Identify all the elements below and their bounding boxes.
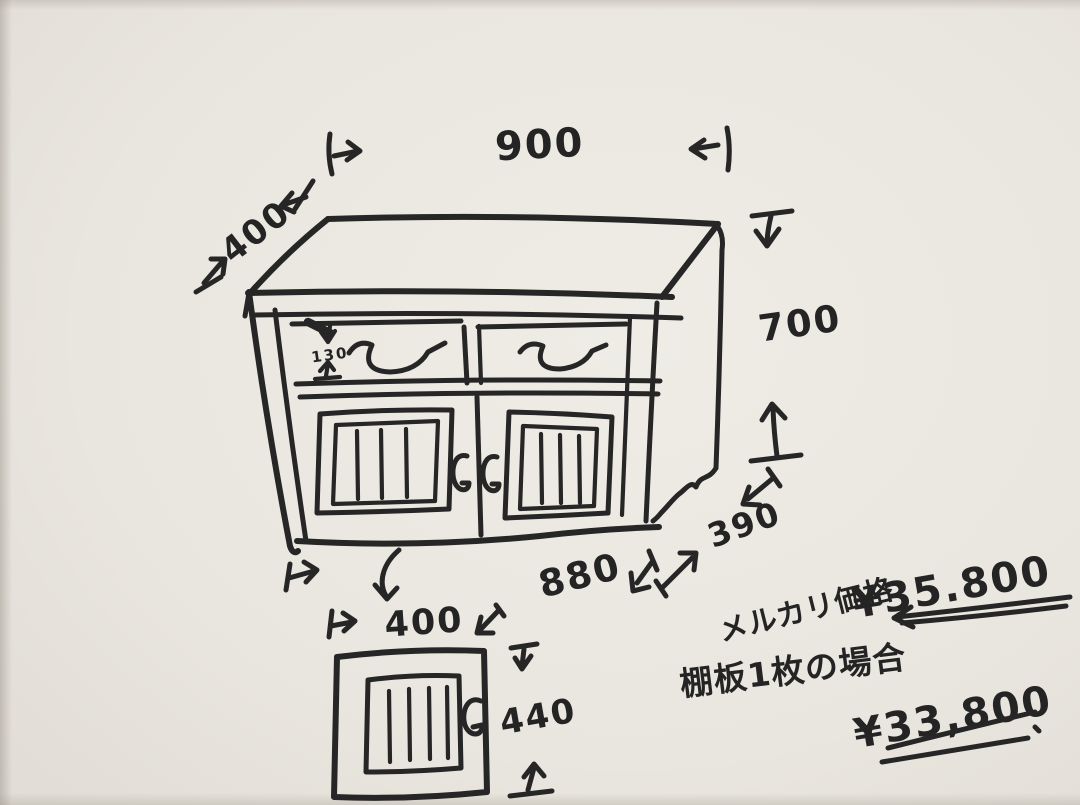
door-center-divider [477, 397, 481, 535]
cabinet-top-back-edge [328, 217, 718, 224]
left-arrow-icon [477, 610, 499, 633]
base-bar [315, 377, 340, 379]
drawer-divider-left [464, 327, 467, 383]
shelf-option-price: ¥33,800 [850, 676, 1056, 758]
left-door-inner [333, 421, 438, 504]
cabinet-bottom-rail [297, 527, 659, 544]
dimension-top-width: 900 [329, 120, 729, 174]
right-arrow-icon [331, 613, 355, 631]
left-door-slat-2 [381, 430, 382, 498]
right-arrow-icon [334, 142, 360, 160]
left-drawer-handle [349, 343, 445, 372]
cabinet-right-panel-edge [716, 227, 723, 468]
right-drawer-handle [520, 344, 606, 369]
left-arrow-icon [691, 140, 718, 158]
dimension-door-height: 440 [497, 644, 580, 796]
up-arrow-icon [762, 404, 785, 456]
dimension-door-width: 400 [329, 600, 504, 645]
shelf-line-upper [296, 380, 660, 384]
cabinet-top-front-edge [248, 291, 672, 297]
dimension-depth: 400 [196, 181, 313, 292]
dimension-height: 700 [751, 211, 844, 461]
left-diagonal-arrow-icon [631, 562, 652, 591]
dim-door-height-label: 440 [497, 691, 580, 744]
mercari-price-value: ¥35.800 [849, 546, 1055, 628]
left-door-slat-3 [406, 429, 407, 497]
dimension-drawer-front: 130 [308, 322, 350, 379]
door-detail-sketch [334, 650, 487, 798]
upper-bound-bar [295, 181, 313, 209]
left-door-slat-1 [357, 431, 358, 499]
right-door-slat-2 [560, 435, 561, 503]
door-slat-1 [389, 691, 390, 762]
left-bound-bar [329, 134, 332, 174]
down-arrow-icon [515, 649, 531, 669]
bottom-base-bar [510, 791, 552, 796]
up-arrow-icon [524, 764, 544, 790]
cabinet-sketch [245, 217, 723, 552]
door-slat-3 [429, 688, 430, 759]
door-slat-4 [447, 687, 448, 758]
right-door-slat-1 [541, 434, 542, 503]
right-door-slat-3 [579, 436, 580, 503]
cabinet-front-right-edge [646, 303, 657, 521]
down-arrow-icon [756, 216, 779, 246]
sketch-paper: 900 400 700 130 390 880 [0, 0, 1080, 805]
drawer-divider-right [479, 326, 481, 383]
cabinet-right-bottom-squiggle [653, 468, 716, 521]
right-diagonal-arrow-icon [662, 553, 696, 588]
furniture-sketch-svg: 900 400 700 130 390 880 [0, 0, 1080, 805]
drawer-rail-top-line-2 [478, 324, 626, 327]
left-door-handle [453, 455, 469, 489]
shelf-option-label: 棚板1枚の場合 [678, 637, 909, 703]
bottom-base-bar [751, 455, 801, 461]
dimension-base-depth: 390 [702, 469, 786, 556]
pricing-notes: メルカリ価格 ¥35.800 棚板1枚の場合 ¥33,800 [678, 546, 1070, 762]
cabinet-right-stile [622, 317, 630, 515]
curved-down-arrow-icon [375, 550, 399, 599]
right-door-handle [483, 456, 499, 490]
door-handle [464, 700, 482, 734]
cabinet-top-fascia-bottom [253, 314, 681, 318]
dim-base-width-label: 880 [534, 545, 625, 607]
leftmost-bound-arrow-icon [286, 562, 317, 590]
dim-height-label: 700 [756, 296, 844, 350]
cabinet-top-right-edge [662, 224, 718, 297]
dim-base-depth-label: 390 [702, 493, 786, 555]
dim-door-width-label: 400 [383, 600, 465, 645]
dim-top-width-label: 900 [494, 120, 586, 171]
dimension-base-width: 880 [286, 545, 696, 607]
door-slat-2 [409, 689, 410, 760]
right-bound-bar [727, 128, 729, 170]
